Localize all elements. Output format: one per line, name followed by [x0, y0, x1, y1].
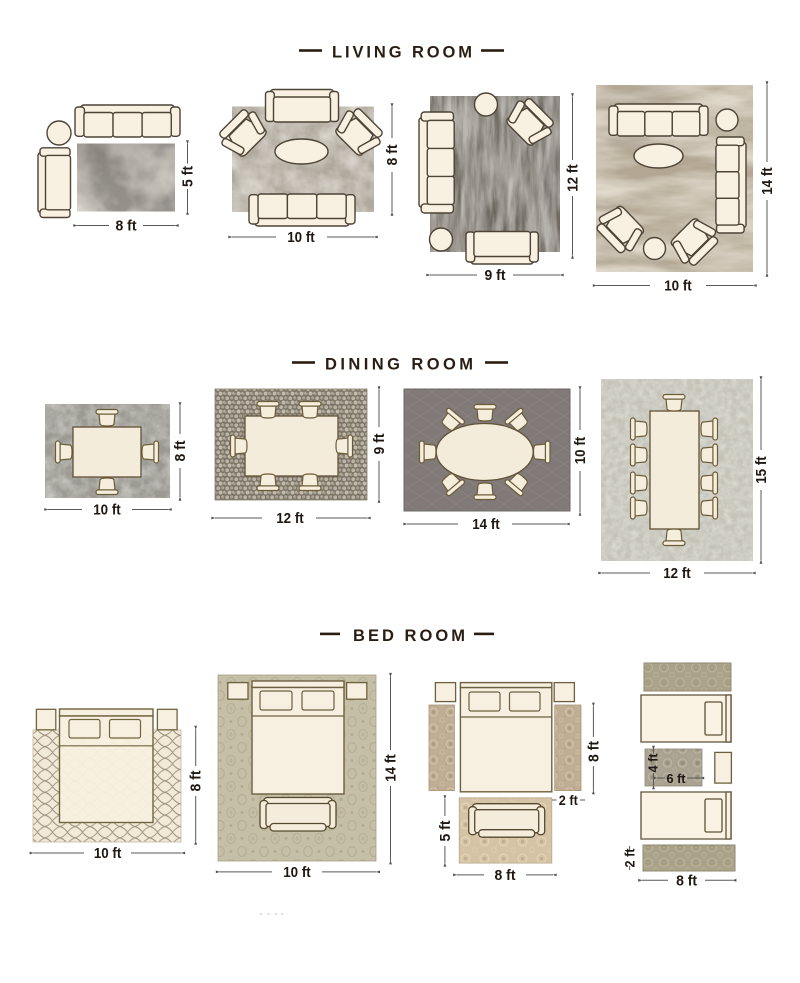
svg-text:4 ft: 4 ft [646, 753, 661, 773]
svg-text:6 ft: 6 ft [667, 771, 687, 786]
svg-text:8 ft: 8 ft [495, 868, 516, 884]
svg-text:8 ft: 8 ft [676, 873, 697, 889]
svg-text:10 ft: 10 ft [573, 437, 589, 465]
svg-text:14 ft: 14 ft [472, 517, 500, 533]
svg-text:8 ft: 8 ft [173, 440, 189, 461]
svg-text:10 ft: 10 ft [287, 230, 315, 246]
svg-text:2 ft: 2 ft [623, 848, 638, 867]
svg-text:5 ft: 5 ft [438, 820, 454, 841]
svg-text:12 ft: 12 ft [566, 164, 582, 192]
svg-text:8 ft: 8 ft [189, 770, 205, 791]
svg-text:2 ft: 2 ft [559, 793, 578, 808]
svg-text:14 ft: 14 ft [760, 167, 776, 195]
svg-text:BED ROOM: BED ROOM [353, 627, 465, 645]
svg-text:12 ft: 12 ft [663, 566, 691, 582]
svg-text:5 ft: 5 ft [181, 166, 197, 187]
svg-text:12 ft: 12 ft [276, 511, 304, 527]
svg-text:9 ft: 9 ft [485, 268, 506, 284]
svg-text:8 ft: 8 ft [586, 741, 602, 762]
svg-text:8 ft: 8 ft [385, 144, 401, 165]
svg-text:15 ft: 15 ft [754, 456, 770, 484]
svg-text:14 ft: 14 ft [384, 754, 400, 782]
svg-text:10 ft: 10 ft [664, 279, 692, 295]
svg-text:10 ft: 10 ft [283, 865, 311, 881]
svg-text:10 ft: 10 ft [93, 503, 121, 519]
svg-text:8 ft: 8 ft [116, 219, 137, 235]
svg-text:9 ft: 9 ft [372, 433, 388, 454]
svg-text:10 ft: 10 ft [94, 846, 122, 862]
